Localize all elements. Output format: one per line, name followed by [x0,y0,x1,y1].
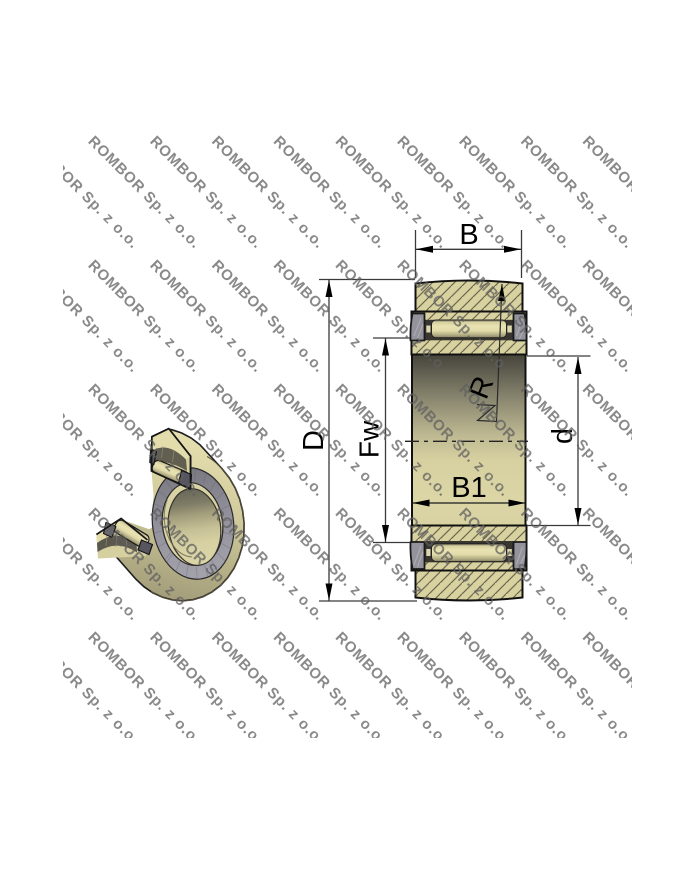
svg-text:ROMBOR Sp. z o.o.: ROMBOR Sp. z o.o. [332,133,451,252]
svg-text:ROMBOR Sp. z o.o.: ROMBOR Sp. z o.o. [23,257,142,376]
svg-text:ROMBOR Sp. z o.o.: ROMBOR Sp. z o.o. [146,629,265,748]
svg-text:ROMBOR Sp. z o.o.: ROMBOR Sp. z o.o. [394,133,513,252]
svg-text:ROMBOR Sp. z o.o.: ROMBOR Sp. z o.o. [579,257,698,376]
svg-text:ROMBOR Sp. z o.o.: ROMBOR Sp. z o.o. [208,257,327,376]
svg-text:ROMBOR Sp. z o.o.: ROMBOR Sp. z o.o. [455,629,574,748]
svg-text:ROMBOR Sp. z o.o.: ROMBOR Sp. z o.o. [579,629,698,748]
svg-text:ROMBOR Sp. z o.o.: ROMBOR Sp. z o.o. [394,629,513,748]
svg-text:ROMBOR Sp. z o.o.: ROMBOR Sp. z o.o. [270,629,389,748]
svg-text:ROMBOR Sp. z o.o.: ROMBOR Sp. z o.o. [208,133,327,252]
svg-text:ROMBOR Sp. z o.o.: ROMBOR Sp. z o.o. [85,257,204,376]
svg-text:ROMBOR Sp. z o.o.: ROMBOR Sp. z o.o. [270,133,389,252]
svg-text:ROMBOR Sp. z o.o.: ROMBOR Sp. z o.o. [517,257,636,376]
svg-text:ROMBOR Sp. z o.o.: ROMBOR Sp. z o.o. [332,629,451,748]
svg-text:ROMBOR Sp. z o.o.: ROMBOR Sp. z o.o. [579,133,698,252]
svg-text:ROMBOR Sp. z o.o.: ROMBOR Sp. z o.o. [517,629,636,748]
svg-text:ROMBOR Sp. z o.o.: ROMBOR Sp. z o.o. [270,505,389,624]
svg-text:ROMBOR Sp. z o.o.: ROMBOR Sp. z o.o. [270,257,389,376]
svg-text:ROMBOR Sp. z o.o.: ROMBOR Sp. z o.o. [208,629,327,748]
svg-text:ROMBOR Sp. z o.o.: ROMBOR Sp. z o.o. [579,505,698,624]
svg-text:ROMBOR Sp. z o.o.: ROMBOR Sp. z o.o. [23,629,142,748]
svg-text:ROMBOR Sp. z o.o.: ROMBOR Sp. z o.o. [146,133,265,252]
svg-text:ROMBOR Sp. z o.o.: ROMBOR Sp. z o.o. [517,381,636,500]
svg-text:ROMBOR Sp. z o.o.: ROMBOR Sp. z o.o. [517,505,636,624]
svg-text:ROMBOR Sp. z o.o.: ROMBOR Sp. z o.o. [579,381,698,500]
svg-text:ROMBOR Sp. z o.o.: ROMBOR Sp. z o.o. [23,133,142,252]
svg-text:ROMBOR Sp. z o.o.: ROMBOR Sp. z o.o. [85,629,204,748]
svg-text:ROMBOR Sp. z o.o.: ROMBOR Sp. z o.o. [146,257,265,376]
svg-text:ROMBOR Sp. z o.o.: ROMBOR Sp. z o.o. [85,133,204,252]
svg-text:ROMBOR Sp. z o.o.: ROMBOR Sp. z o.o. [517,133,636,252]
